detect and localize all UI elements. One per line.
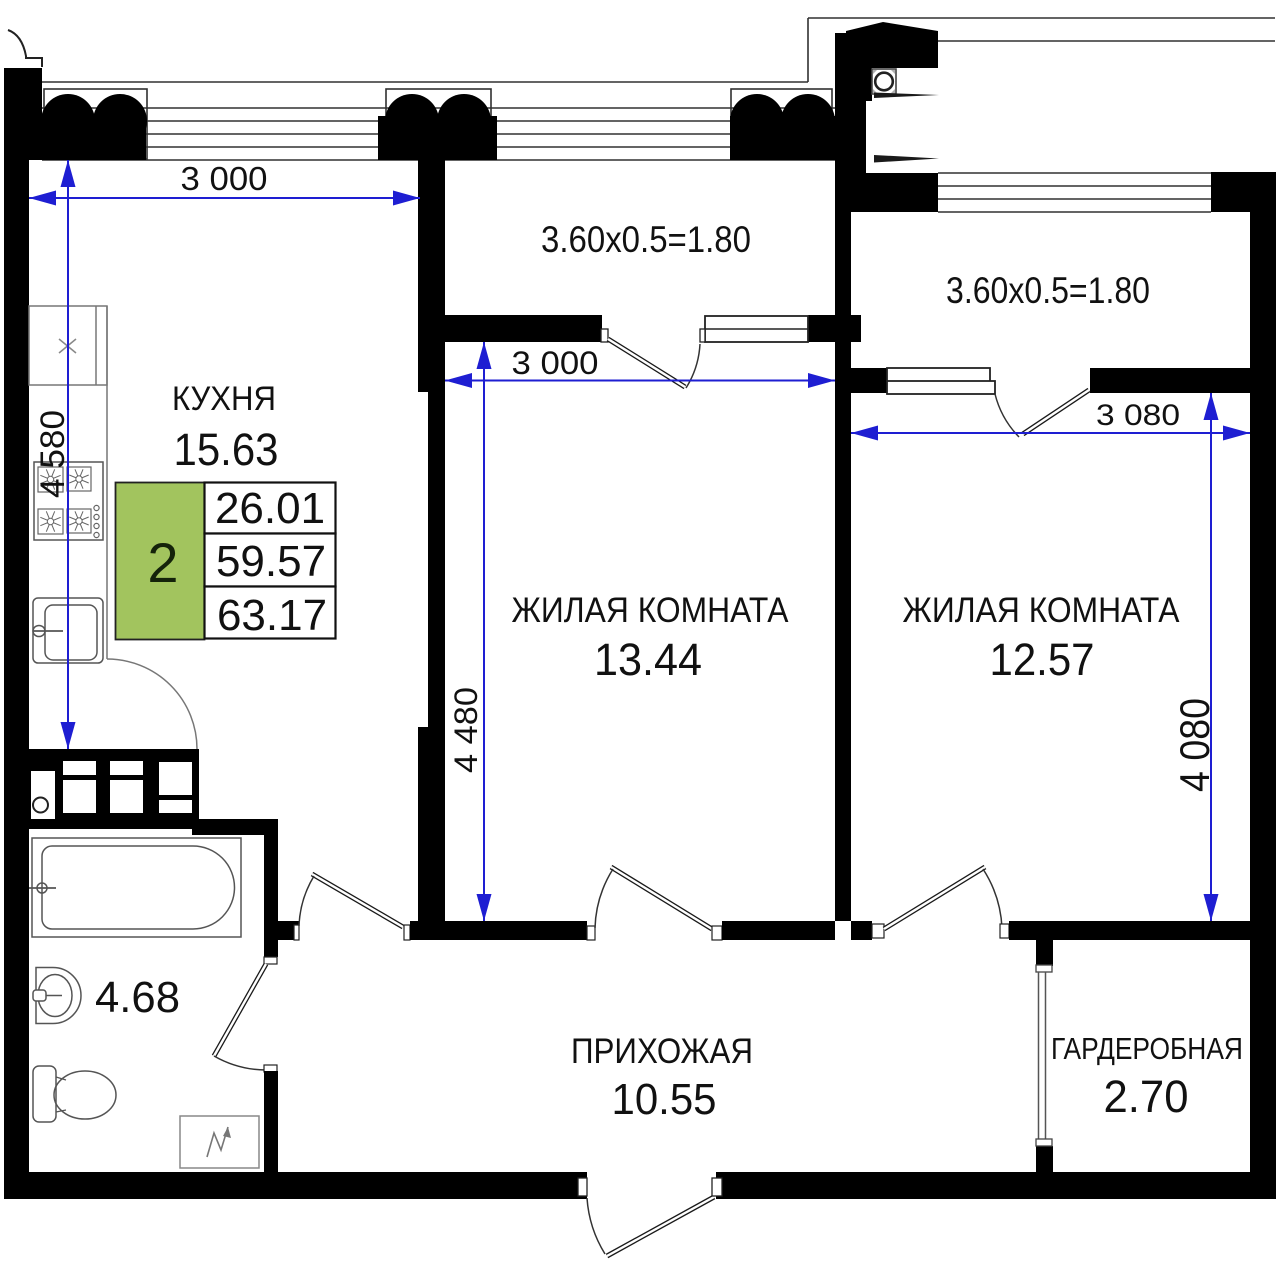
svg-text:ПРИХОЖАЯ: ПРИХОЖАЯ <box>571 1032 753 1071</box>
svg-text:ГАРДЕРОБНАЯ: ГАРДЕРОБНАЯ <box>1051 1031 1243 1066</box>
svg-text:4 580: 4 580 <box>34 410 72 498</box>
svg-text:59.57: 59.57 <box>216 537 326 586</box>
svg-text:3 080: 3 080 <box>1096 399 1180 432</box>
svg-text:63.17: 63.17 <box>217 591 327 640</box>
svg-text:3.60х0.5=1.80: 3.60х0.5=1.80 <box>541 219 751 260</box>
svg-text:2.70: 2.70 <box>1104 1071 1189 1122</box>
svg-text:4 480: 4 480 <box>448 687 484 773</box>
svg-text:ЖИЛАЯ КОМНАТА: ЖИЛАЯ КОМНАТА <box>903 591 1181 630</box>
svg-text:12.57: 12.57 <box>990 634 1095 685</box>
svg-text:13.44: 13.44 <box>594 634 702 685</box>
svg-text:3.60х0.5=1.80: 3.60х0.5=1.80 <box>946 270 1150 311</box>
svg-text:3 000: 3 000 <box>181 160 268 197</box>
svg-text:4 080: 4 080 <box>1171 698 1218 792</box>
svg-text:26.01: 26.01 <box>215 484 325 533</box>
svg-text:4.68: 4.68 <box>95 973 180 1022</box>
svg-text:КУХНЯ: КУХНЯ <box>172 380 276 418</box>
svg-text:ЖИЛАЯ КОМНАТА: ЖИЛАЯ КОМНАТА <box>512 591 790 630</box>
svg-text:10.55: 10.55 <box>612 1075 717 1124</box>
svg-text:15.63: 15.63 <box>174 424 279 475</box>
svg-text:3 000: 3 000 <box>512 345 599 381</box>
svg-text:2: 2 <box>147 531 178 594</box>
